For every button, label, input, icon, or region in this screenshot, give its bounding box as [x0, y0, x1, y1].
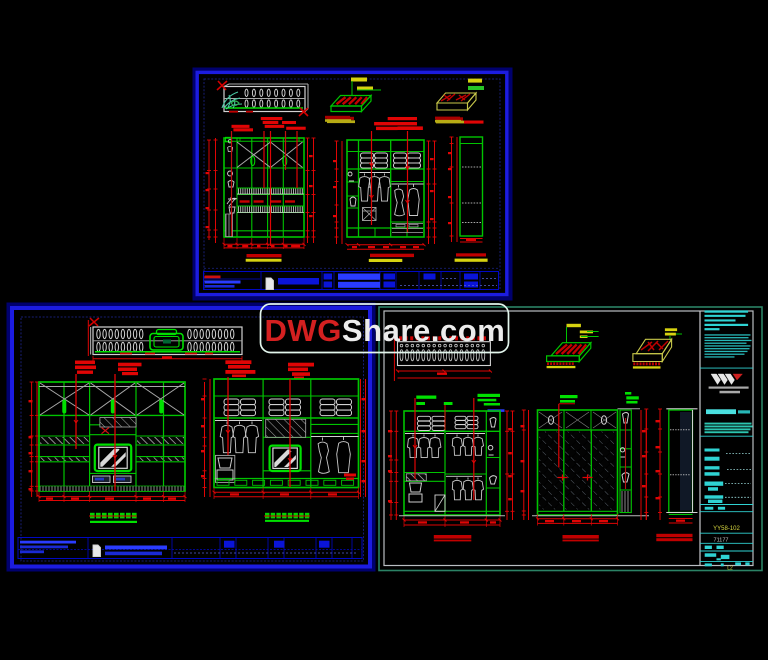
- svg-text:L2: L2: [727, 566, 733, 572]
- svg-text:YY58-102: YY58-102: [713, 526, 740, 532]
- svg-text:DWGShare.com: DWGShare.com: [265, 313, 506, 348]
- svg-text:71177: 71177: [714, 538, 729, 544]
